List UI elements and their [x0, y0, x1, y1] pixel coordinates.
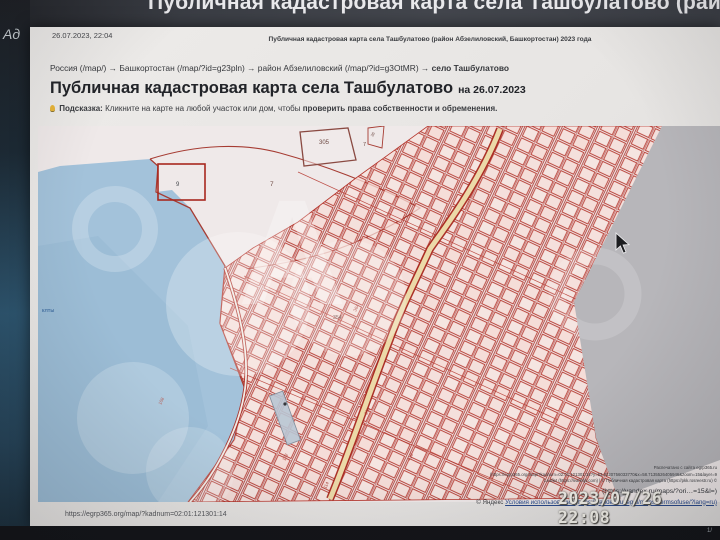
print-footer-url: https://egrp365.org/map/?kadnum=02:01:12…	[65, 511, 227, 518]
lightbulb-icon	[50, 105, 55, 112]
side-label: Ад	[3, 26, 20, 42]
map-canvas[interactable]: 9 305 7 7 36 354 364 108 172 230 410 114…	[38, 126, 720, 502]
lake-label: клты	[42, 308, 54, 314]
breadcrumb-links[interactable]: Россия (/map/) → Башкортостан (/map/?id=…	[50, 63, 432, 73]
cadastral-map[interactable]: 9 305 7 7 36 354 364 108 172 230 410 114…	[38, 126, 720, 502]
page-indicator: 1/	[707, 528, 712, 534]
label-305: 305	[319, 140, 330, 146]
screen-photo: Публичная кадастровая карта села Ташбула…	[0, 0, 720, 540]
hint-label: Подсказка:	[59, 104, 103, 113]
printed-from-note: Распечатано с сайта egrp365.ru	[476, 465, 717, 472]
label-7b: 7	[363, 142, 366, 148]
screen-left-edge: Ад	[0, 0, 30, 540]
print-header: Публичная кадастровая карта села Ташбула…	[40, 36, 720, 43]
hint-bold: проверить права собственности и обремене…	[303, 104, 498, 113]
breadcrumb-current: село Ташбулатово	[432, 63, 509, 73]
listing-title: Публичная кадастровая карта села Ташбула…	[148, 0, 720, 15]
page-title: Публичная кадастровая карта села Ташбула…	[50, 79, 526, 98]
breadcrumb[interactable]: Россия (/map/) → Башкортостан (/map/?id=…	[50, 63, 509, 73]
camera-timestamp: 2023/07/26 22:08	[558, 489, 720, 527]
leaflet-credit[interactable]: Leaflet (https://leafletjs.com) | © Публ…	[476, 478, 717, 485]
hint-text: Кликните на карте на любой участок или д…	[103, 104, 303, 113]
parcel-305[interactable]	[300, 128, 356, 166]
yandex-copyright: © Яндекс	[476, 499, 505, 506]
cadastral-map-page: 26.07.2023, 22:04 Публичная кадастровая …	[30, 27, 720, 526]
hint-line: Подсказка: Кликните на карте на любой уч…	[50, 104, 497, 113]
screen-bottom-edge	[0, 526, 720, 540]
page-title-date: на 26.07.2023	[458, 84, 526, 96]
listing-title-bar: Публичная кадастровая карта села Ташбула…	[0, 0, 720, 27]
selected-parcel-marker	[283, 402, 286, 405]
watermark-letter: А	[238, 168, 346, 336]
share-url[interactable]: (https://egrp365.org/map/?kadnum=02:01:1…	[476, 472, 717, 479]
